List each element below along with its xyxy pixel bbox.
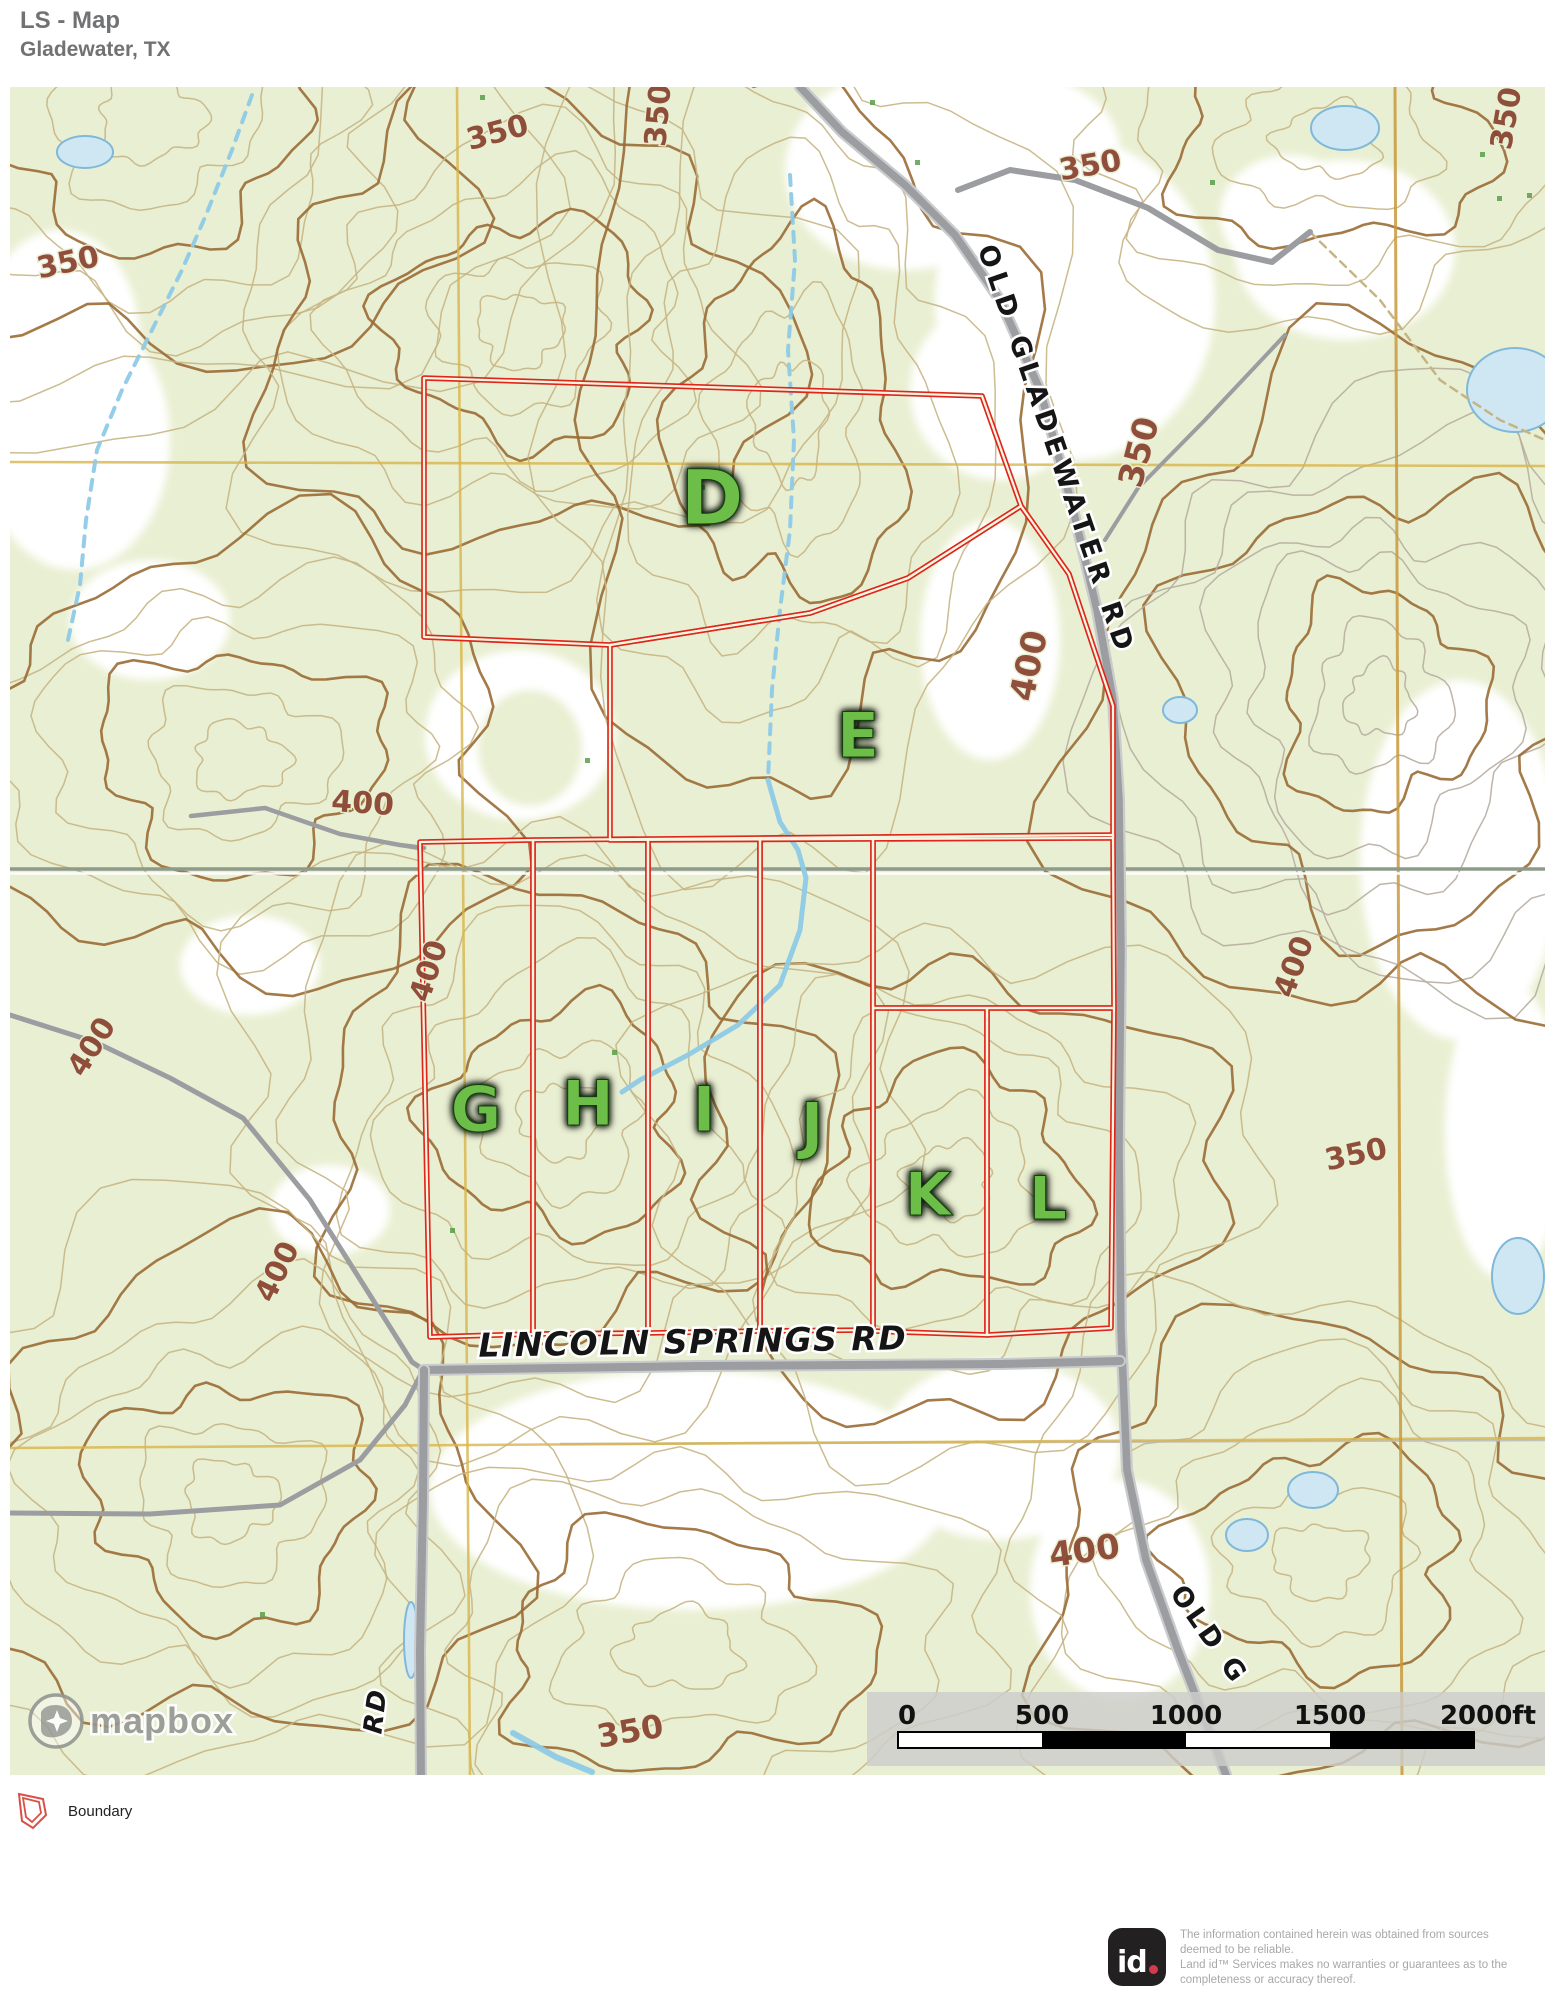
road-label: RD [358,1687,393,1736]
scale-label: 0 [898,1701,916,1731]
footer: id The information contained herein was … [1108,1928,1545,1988]
parcel-label-E: E [837,699,879,772]
scale-label: 1000 [1150,1701,1222,1731]
scale-bar: 0500100015002000ft [867,1692,1545,1766]
map-container[interactable]: OLD GLADEWATER RDLINCOLN SPRINGS RDOLD G… [10,87,1545,1775]
parcel-label-H: H [562,1067,614,1140]
map-canvas[interactable]: OLD GLADEWATER RDLINCOLN SPRINGS RDOLD G… [10,87,1545,1775]
mapbox-logo[interactable]: mapbox [30,1695,234,1747]
map-legend: Boundary [12,1788,132,1834]
page-header: LS - Map Gladewater, TX [20,6,171,63]
scale-label: 500 [1015,1701,1069,1731]
parcel-label-G: G [451,1073,502,1146]
parcel-label-D: D [680,453,743,542]
mapbox-logo-text: mapbox [90,1700,234,1741]
land-id-logo-dot [1149,1965,1158,1974]
contour-elevation-label: 400 [330,784,395,823]
parcel-label-I: I [692,1073,715,1146]
boundary-legend-icon [12,1788,54,1834]
parcel-label-L: L [1029,1164,1067,1234]
road-label: LINCOLN SPRINGS RD [478,1318,907,1364]
disclaimer-text: The information contained herein was obt… [1180,1928,1545,1988]
page-subtitle: Gladewater, TX [20,36,171,63]
scale-label: 1500 [1294,1701,1366,1731]
boundary-legend-label: Boundary [68,1803,132,1820]
page-title: LS - Map [20,6,171,36]
land-id-logo: id [1108,1928,1166,1986]
scale-label: 2000ft [1440,1701,1536,1731]
contour-elevation-label: 350 [638,87,678,148]
parcel-label-J: J [796,1089,823,1162]
parcel-label-K: K [905,1160,954,1230]
